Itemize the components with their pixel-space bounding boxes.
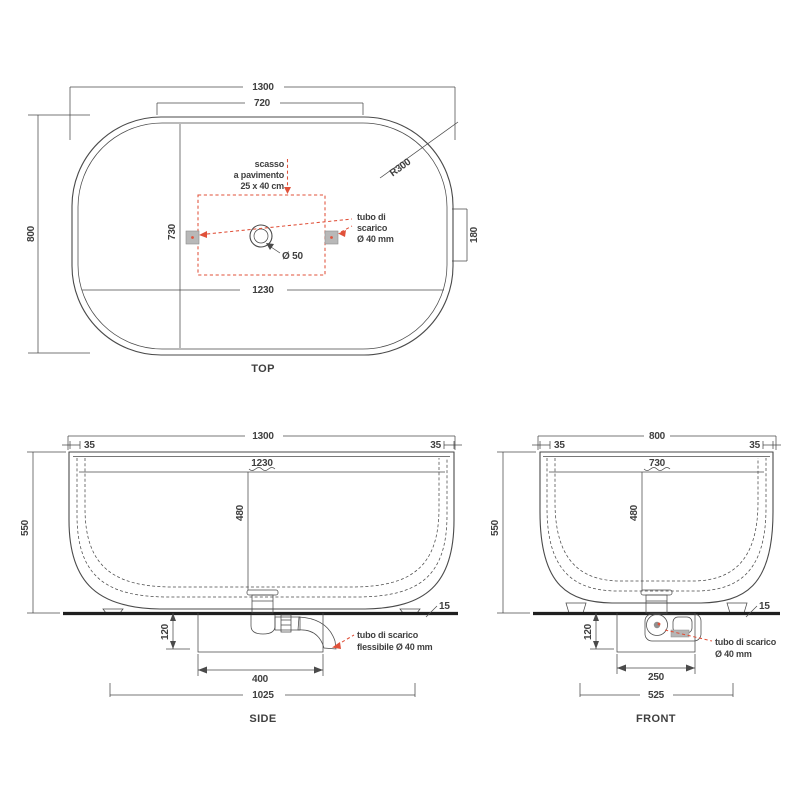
floor-recess-area — [198, 195, 325, 275]
recess-note: scasso a pavimento 25 x 40 cm — [234, 159, 291, 194]
note-line: tubo di scarico — [715, 637, 777, 647]
dim-rim-left: 35 — [532, 440, 565, 451]
dim-text: 730 — [649, 458, 666, 469]
arrowhead — [199, 231, 207, 238]
side-view: 1300 35 35 1230 480 550 — [20, 431, 462, 725]
dim-text: 15 — [439, 601, 450, 612]
trap-rib — [281, 615, 291, 632]
arrowhead — [284, 187, 291, 194]
drain-pipe-note: tubo di scarico Ø 40 mm — [199, 212, 394, 244]
dim-trap-width: 250 — [617, 654, 695, 683]
dim-text: 120 — [160, 623, 171, 640]
leader-dot — [330, 236, 333, 239]
dim-text: 180 — [469, 226, 480, 243]
leader-dot — [658, 623, 661, 626]
tub-outer-outline — [72, 117, 453, 355]
arrowhead — [593, 641, 599, 649]
recess-box — [198, 613, 323, 652]
flexible-hose — [298, 617, 336, 649]
dim-corner-radius: R300 — [380, 122, 458, 179]
tub-shell-dashed-outer — [77, 458, 447, 597]
arrowhead — [332, 642, 341, 649]
waste-body — [252, 595, 273, 613]
dim-base-width: 525 — [580, 683, 733, 701]
dim-rim-right: 35 — [430, 440, 462, 451]
arrowhead — [686, 665, 695, 672]
dim-text: 800 — [649, 431, 666, 442]
dim-text: 35 — [749, 440, 760, 451]
note-line: 25 x 40 cm — [240, 181, 284, 191]
dim-overall-length: 1300 — [70, 82, 455, 140]
dim-text: 1230 — [252, 285, 274, 296]
arrowhead — [266, 243, 274, 250]
arrowhead — [617, 665, 626, 672]
dim-recess-depth: 120 — [160, 613, 190, 649]
dim-base-length: 1025 — [110, 683, 415, 701]
technical-drawing-page: 1300 720 800 730 1230 — [0, 0, 800, 800]
waste-body — [646, 595, 667, 613]
dim-height: 550 — [20, 452, 66, 613]
tub-profile-outer — [69, 452, 454, 609]
note-line: tubo di scarico — [357, 630, 419, 640]
dim-overall-width: 800 — [538, 431, 776, 450]
arrowhead — [170, 641, 176, 649]
drain-pipe-note: tubo di scarico flessibile Ø 40 mm — [332, 630, 433, 652]
drain-top: Ø 50 — [250, 225, 304, 262]
dim-text: 480 — [235, 504, 246, 521]
view-title-front: FRONT — [636, 713, 676, 725]
leader-line — [426, 606, 437, 617]
drain-waste-front — [641, 590, 701, 641]
dim-inner-length: 1230 — [249, 458, 275, 471]
view-title-side: SIDE — [249, 713, 276, 725]
top-view: 1300 720 800 730 1230 — [26, 82, 480, 375]
dim-overall-width: 800 — [26, 115, 90, 353]
dim-text: R300 — [388, 156, 414, 179]
trap-label-tag — [671, 630, 689, 637]
trap-cup — [251, 615, 275, 634]
dim-side-offset: 180 — [452, 209, 480, 261]
dim-text: 35 — [554, 440, 565, 451]
dim-text: 730 — [167, 223, 178, 240]
dim-rim-left: 35 — [62, 440, 95, 451]
tub-shell-dashed-inner — [85, 458, 439, 587]
view-title-top: TOP — [251, 363, 275, 375]
note-line: Ø 40 mm — [357, 234, 394, 244]
dim-overall-length: 1300 — [68, 431, 455, 450]
leader-dot — [191, 236, 194, 239]
dim-text: 1300 — [252, 82, 274, 93]
note-line: Ø 40 mm — [715, 649, 752, 659]
dim-text: 550 — [490, 519, 501, 536]
dim-straight-length: 720 — [157, 98, 363, 115]
note-line: scasso — [255, 159, 285, 169]
drain-inner-circle — [254, 229, 268, 243]
leader-line — [341, 226, 352, 232]
dim-depth: 480 — [629, 472, 642, 590]
tub-foot-left — [566, 603, 586, 613]
arrowhead — [314, 667, 323, 674]
front-view: 800 35 35 730 480 550 — [490, 431, 781, 725]
tub-foot-right — [727, 603, 747, 613]
leader-line — [746, 606, 757, 617]
dim-text: 1230 — [251, 458, 273, 469]
drain-diameter-label: Ø 50 — [282, 251, 304, 262]
dim-depth: 480 — [235, 472, 248, 590]
dim-text: 800 — [26, 225, 37, 242]
dim-text: 480 — [629, 504, 640, 521]
note-line: a pavimento — [234, 170, 285, 180]
trap-outlet — [275, 617, 300, 630]
tub-shell-dashed-inner — [555, 458, 758, 581]
bathtub-drawing: 1300 720 800 730 1230 — [0, 0, 800, 800]
dim-text: 525 — [648, 690, 665, 701]
dim-recess-depth: 120 — [583, 613, 614, 649]
dim-text: 550 — [20, 519, 31, 536]
note-line: scarico — [357, 223, 388, 233]
note-line: tubo di — [357, 212, 386, 222]
dim-trap-width: 400 — [198, 654, 323, 685]
dim-text: 250 — [648, 672, 665, 683]
dim-text: 1300 — [252, 431, 274, 442]
waste-cap — [247, 590, 278, 595]
dim-inner-width: 730 — [644, 458, 670, 471]
dim-text: 720 — [254, 98, 271, 109]
dim-text: 35 — [84, 440, 95, 451]
dim-text: 400 — [252, 674, 269, 685]
note-line: flessibile Ø 40 mm — [357, 642, 433, 652]
dim-height: 550 — [490, 452, 536, 613]
dim-text: 15 — [759, 601, 770, 612]
dim-text: 35 — [430, 440, 441, 451]
dim-text: 120 — [583, 623, 594, 640]
arrowhead — [198, 667, 207, 674]
dim-text: 1025 — [252, 690, 274, 701]
tub-shell-dashed-outer — [547, 458, 766, 591]
dim-inner-length: 1230 — [82, 285, 444, 296]
dim-inner-width: 730 — [167, 124, 180, 348]
